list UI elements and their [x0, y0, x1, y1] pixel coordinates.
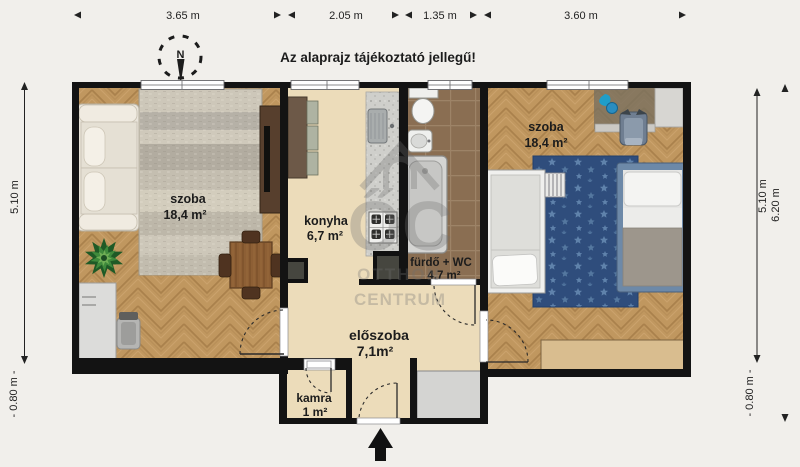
svg-text:- 0.80 m -: - 0.80 m - — [744, 369, 756, 416]
svg-text:- 0.80 m -: - 0.80 m - — [8, 370, 20, 417]
svg-text:5.10 m: 5.10 m — [757, 179, 769, 213]
svg-text:7,1m²: 7,1m² — [357, 343, 394, 359]
svg-text:6.20 m: 6.20 m — [770, 188, 782, 222]
svg-text:Az alaprajz tájékoztató jelleg: Az alaprajz tájékoztató jellegű! — [280, 50, 476, 65]
svg-text:kamra: kamra — [296, 391, 332, 405]
svg-text:5.10 m: 5.10 m — [9, 180, 21, 214]
svg-text:CENTRUM: CENTRUM — [354, 290, 446, 309]
svg-text:konyha: konyha — [304, 214, 349, 228]
svg-text:ŐC: ŐC — [348, 187, 453, 265]
svg-text:18,4 m²: 18,4 m² — [524, 136, 567, 150]
svg-text:előszoba: előszoba — [349, 327, 409, 343]
svg-text:3.60 m: 3.60 m — [564, 10, 598, 22]
svg-text:1.35 m: 1.35 m — [423, 10, 457, 22]
svg-text:OTTHON: OTTHON — [357, 265, 441, 284]
svg-text:1 m²: 1 m² — [303, 405, 328, 419]
svg-text:6,7 m²: 6,7 m² — [307, 229, 343, 243]
svg-text:3.65 m: 3.65 m — [166, 10, 200, 22]
svg-text:szoba: szoba — [170, 192, 206, 206]
svg-text:szoba: szoba — [528, 120, 564, 134]
svg-text:18,4 m²: 18,4 m² — [163, 208, 206, 222]
svg-text:2.05 m: 2.05 m — [329, 10, 363, 22]
